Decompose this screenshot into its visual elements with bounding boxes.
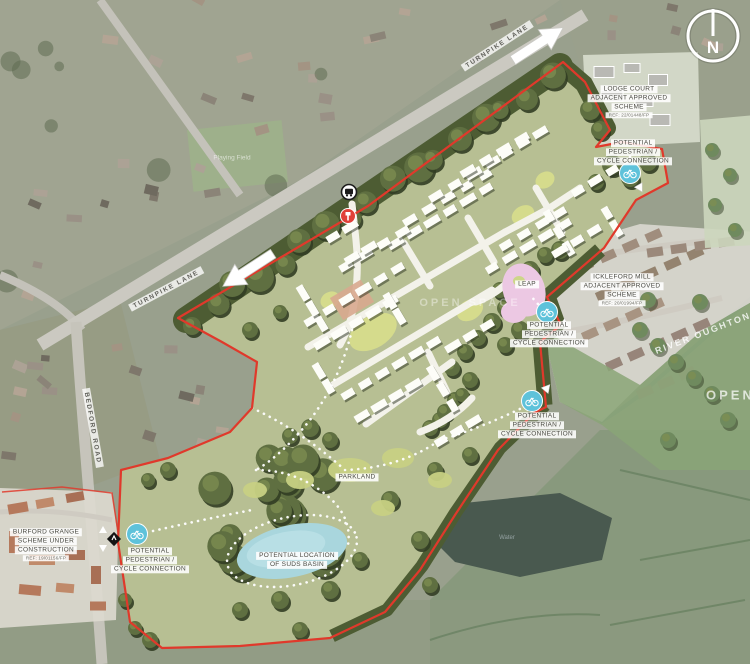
site-entrance-marker-icon	[341, 209, 356, 224]
cycle-connection-label-4: POTENTIAL PEDESTRIAN / CYCLE CONNECTION	[111, 546, 189, 573]
compass-north-letter: N	[707, 38, 719, 57]
tree-highlight	[162, 464, 170, 472]
cycle-connection-label-1: POTENTIAL PEDESTRIAN / CYCLE CONNECTION	[594, 138, 672, 165]
parkland-label: PARKLAND	[336, 472, 379, 481]
aerial-tree	[38, 41, 54, 57]
tree-highlight	[662, 434, 670, 442]
aerial-house	[164, 345, 177, 353]
tree-highlight	[143, 474, 150, 481]
tree-highlight	[694, 296, 702, 304]
construction-scheme-roof	[91, 566, 101, 584]
aerial-house	[320, 112, 335, 122]
tree-highlight	[464, 374, 472, 382]
tree-highlight	[358, 193, 369, 204]
approved-scheme-block	[594, 67, 614, 78]
tree-highlight	[670, 356, 678, 364]
tree-highlight	[244, 324, 252, 332]
tree-highlight	[211, 534, 226, 549]
aerial-house	[609, 15, 618, 23]
aerial-tree	[45, 119, 58, 132]
open-space-label-mid: OPEN SPACE	[419, 297, 520, 309]
approved-landscape-area	[700, 115, 750, 248]
masterplan-aerial-map: N LODGE COURT ADJACENT APPROVED SCHEME R…	[0, 0, 750, 664]
tree-highlight	[315, 214, 329, 228]
tree-highlight	[284, 430, 292, 438]
construction-scheme-roof	[19, 584, 42, 596]
aerial-tree	[147, 158, 171, 182]
tree-highlight	[688, 372, 696, 380]
aerial-house	[66, 214, 82, 222]
aerial-tree	[315, 68, 328, 81]
tree-highlight	[464, 449, 472, 457]
aerial-house	[42, 387, 58, 395]
tree-highlight	[273, 593, 282, 602]
amenity-green	[243, 482, 267, 498]
tree-highlight	[294, 624, 302, 632]
suds-basin-label: POTENTIAL LOCATION OF SUDS BASIN	[256, 551, 338, 569]
aerial-house	[195, 385, 205, 395]
burford-grange-label: BURFORD GRANGE SCHEME UNDER CONSTRUCTION…	[10, 527, 82, 563]
aerial-house	[298, 62, 311, 71]
amenity-green	[428, 472, 452, 488]
tree-highlight	[593, 123, 602, 132]
lodge-court-label: LODGE COURT ADJACENT APPROVED SCHEME REF…	[588, 84, 671, 120]
tree-highlight	[707, 144, 714, 151]
tree-highlight	[429, 464, 437, 472]
tree-highlight	[303, 421, 312, 430]
bus-stop-icon	[342, 185, 357, 200]
tree-highlight	[634, 324, 642, 332]
cycle-icon-circle	[127, 524, 148, 545]
amenity-green	[371, 500, 395, 516]
playing-field-label: Playing Field	[213, 155, 250, 162]
tree-highlight	[324, 434, 332, 442]
tree-highlight	[234, 604, 242, 612]
tree-highlight	[323, 583, 332, 592]
tree-highlight	[383, 168, 396, 181]
cycle-connection-icon-3	[522, 391, 543, 412]
construction-scheme-roof	[56, 583, 75, 594]
tree-highlight	[730, 224, 737, 231]
tree-highlight	[273, 450, 289, 466]
tree-highlight	[499, 339, 507, 347]
tree-highlight	[722, 414, 730, 422]
cycle-connection-label-2: POTENTIAL PEDESTRIAN / CYCLE CONNECTION	[510, 320, 588, 347]
construction-scheme-roof	[90, 602, 106, 611]
tree-highlight	[290, 231, 302, 243]
aerial-tree	[54, 62, 64, 72]
cycle-connection-icon-4	[127, 524, 148, 545]
tree-highlight	[539, 249, 547, 257]
tree-highlight	[725, 169, 732, 176]
tree-highlight	[439, 406, 447, 414]
tree-highlight	[413, 533, 422, 542]
aerial-house	[118, 159, 130, 168]
tree-highlight	[354, 554, 362, 562]
tree-highlight	[275, 306, 282, 313]
aerial-house	[607, 30, 615, 40]
tree-highlight	[710, 199, 717, 206]
approved-scheme-block	[624, 64, 640, 73]
leap-label: LEAP	[515, 279, 539, 288]
ickleford-mill-label: ICKLEFORD MILL ADJACENT APPROVED SCHEME …	[581, 272, 664, 308]
tree-highlight	[457, 389, 464, 396]
water-label: Water	[499, 535, 515, 541]
tree-highlight	[424, 579, 432, 587]
aerial-tree	[12, 60, 31, 79]
aerial-house	[41, 355, 50, 362]
tree-highlight	[291, 448, 307, 464]
cycle-connection-label-3: POTENTIAL PEDESTRIAN / CYCLE CONNECTION	[498, 411, 576, 438]
cycle-icon-circle	[522, 391, 543, 412]
open-space-label-right: OPEN SPACE	[706, 388, 750, 403]
tree-highlight	[202, 475, 219, 492]
